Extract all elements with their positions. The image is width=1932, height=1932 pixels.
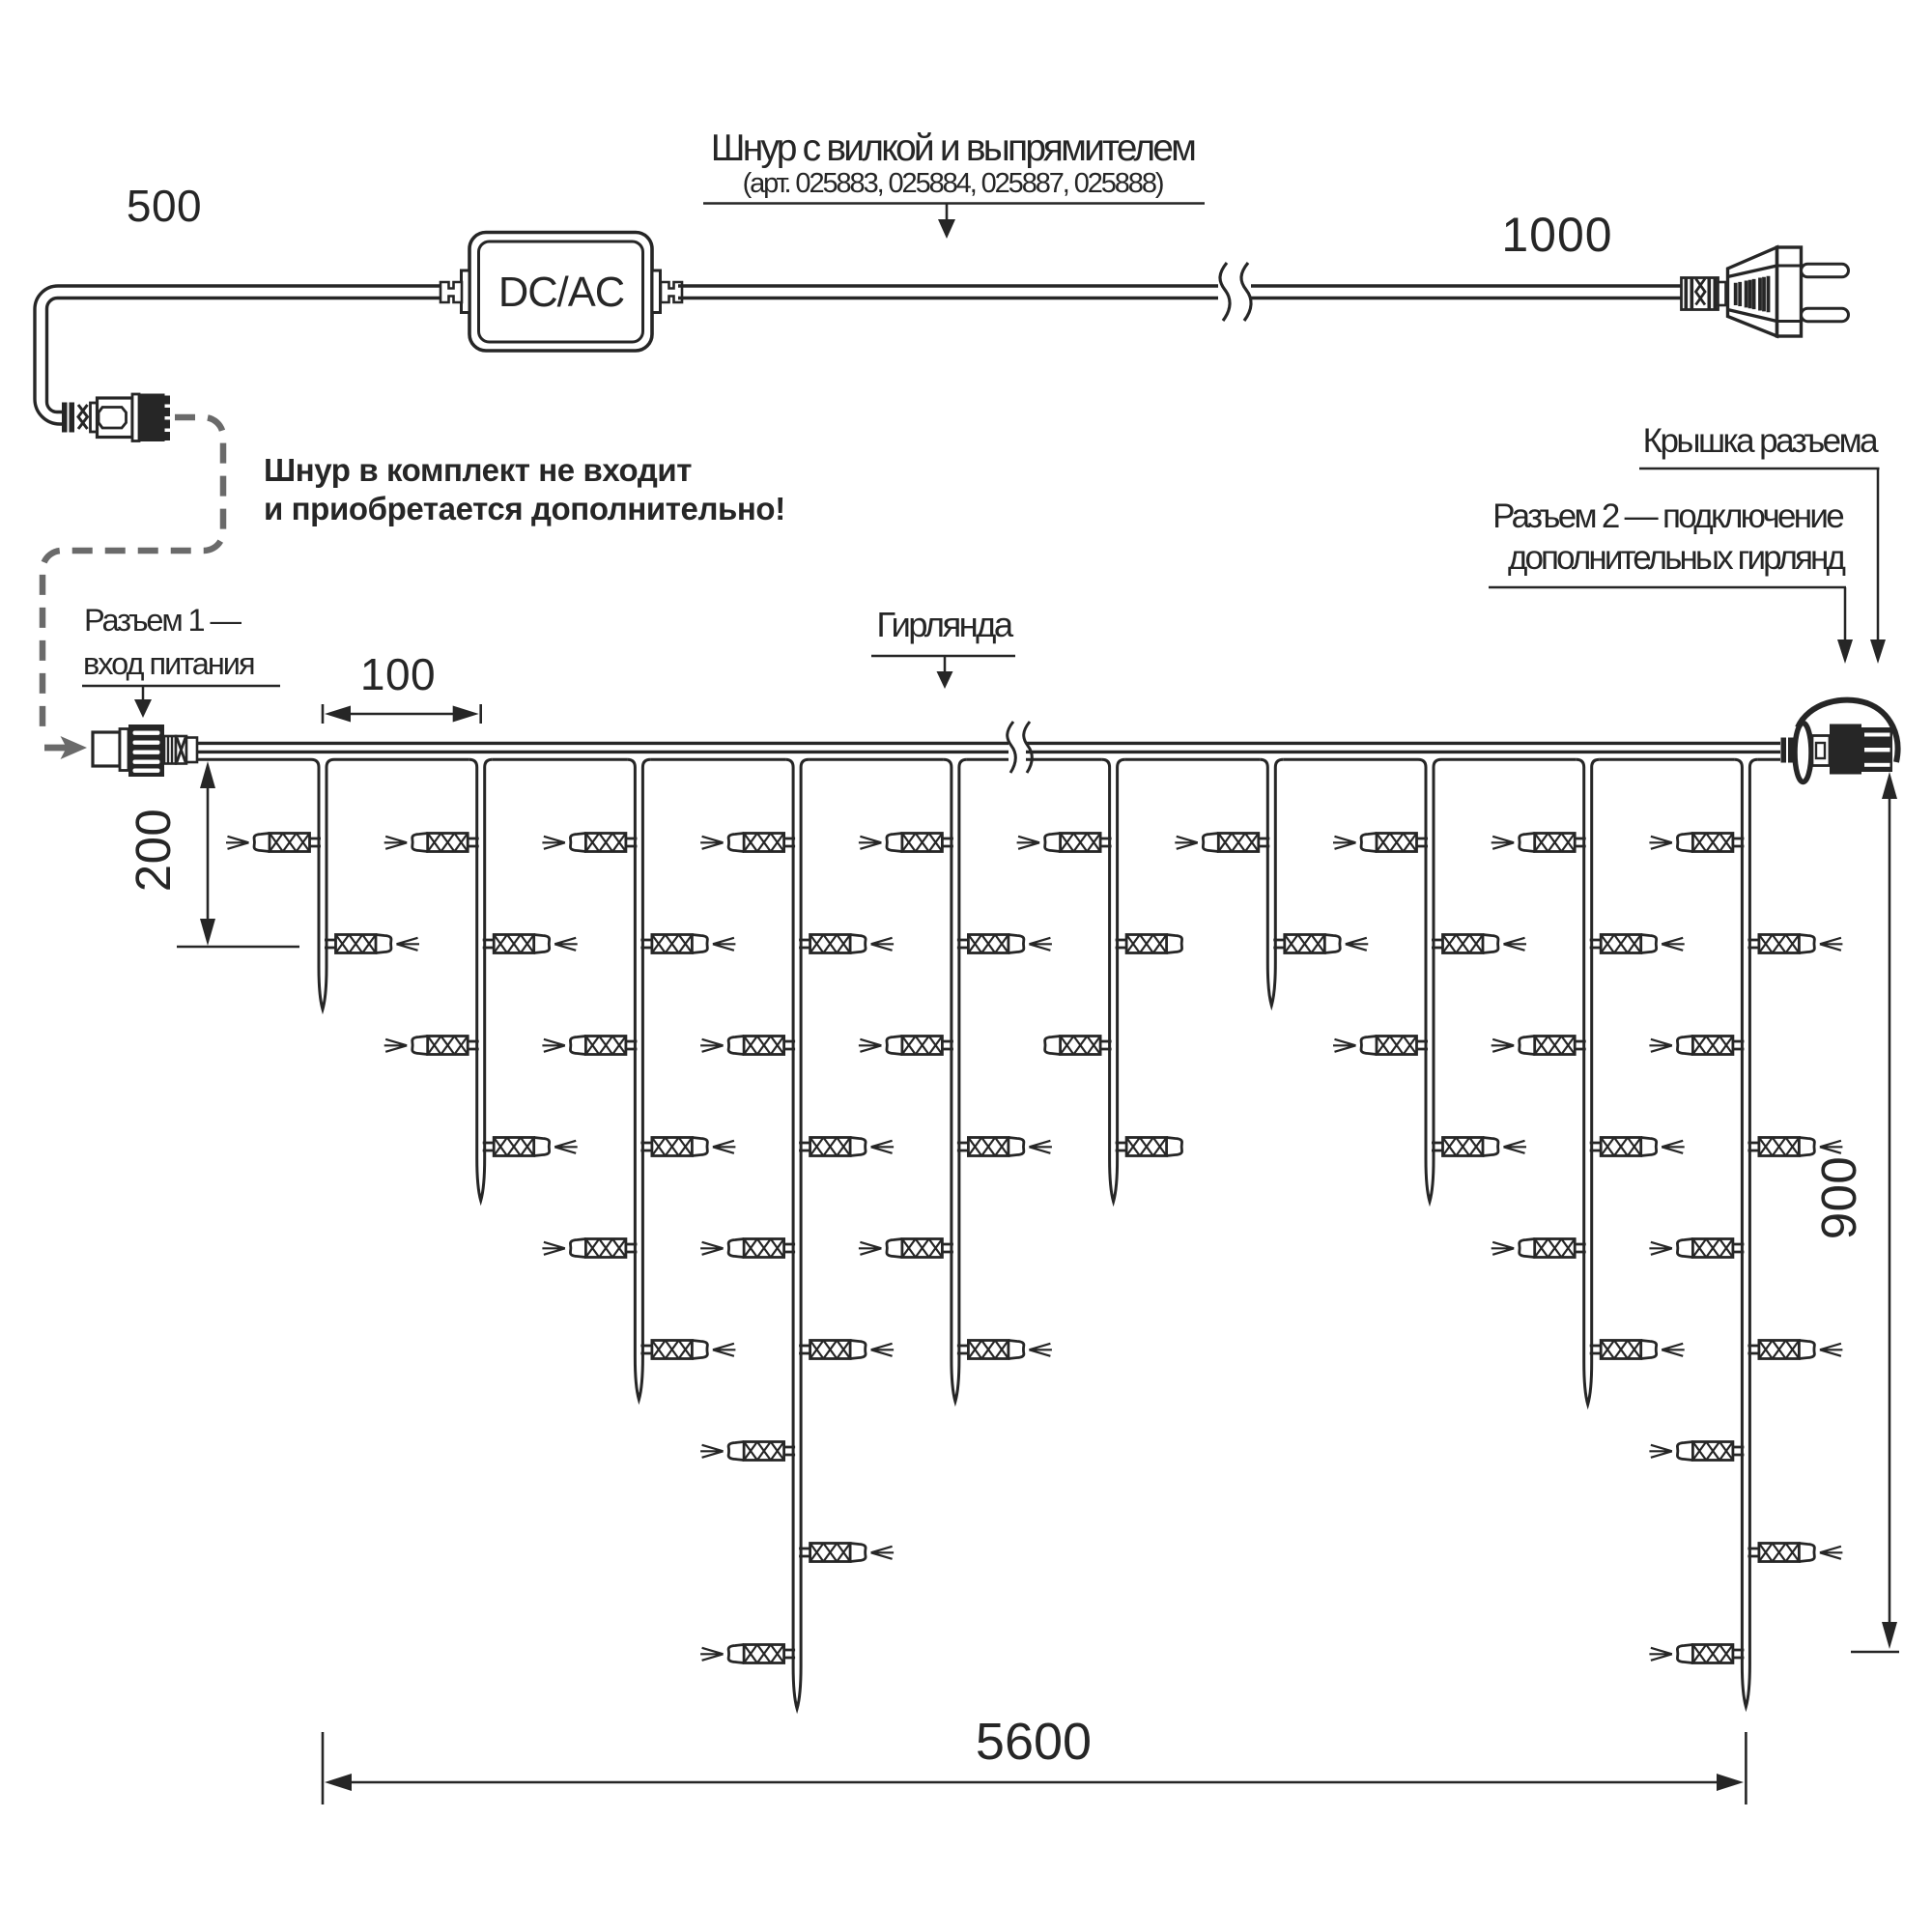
- svg-text:Разъем 2 — подключение: Разъем 2 — подключение: [1492, 497, 1843, 535]
- svg-text:100: 100: [360, 649, 436, 699]
- svg-text:(арт. 025883, 025884, 025887,: (арт. 025883, 025884, 025887, 025888): [743, 168, 1163, 199]
- svg-text:1000: 1000: [1501, 208, 1612, 262]
- svg-text:Шнур в комплект не входит: Шнур в комплект не входит: [264, 452, 692, 488]
- svg-text:DC/AC: DC/AC: [498, 270, 624, 316]
- svg-text:200: 200: [126, 809, 181, 893]
- svg-text:Гирлянда: Гирлянда: [876, 605, 1013, 644]
- svg-text:900: 900: [1811, 1156, 1866, 1240]
- svg-text:Разъем 1 —: Разъем 1 —: [84, 603, 241, 638]
- svg-text:вход питания: вход питания: [83, 646, 254, 681]
- svg-text:500: 500: [127, 181, 202, 231]
- svg-text:Шнур с вилкой и выпрямителем: Шнур с вилкой и выпрямителем: [711, 128, 1195, 169]
- svg-text:дополнительных гирлянд: дополнительных гирлянд: [1508, 539, 1846, 577]
- svg-text:5600: 5600: [976, 1713, 1092, 1771]
- svg-text:Крышка разъема: Крышка разъема: [1643, 422, 1879, 460]
- svg-text:и приобретается дополнительно!: и приобретается дополнительно!: [264, 491, 785, 526]
